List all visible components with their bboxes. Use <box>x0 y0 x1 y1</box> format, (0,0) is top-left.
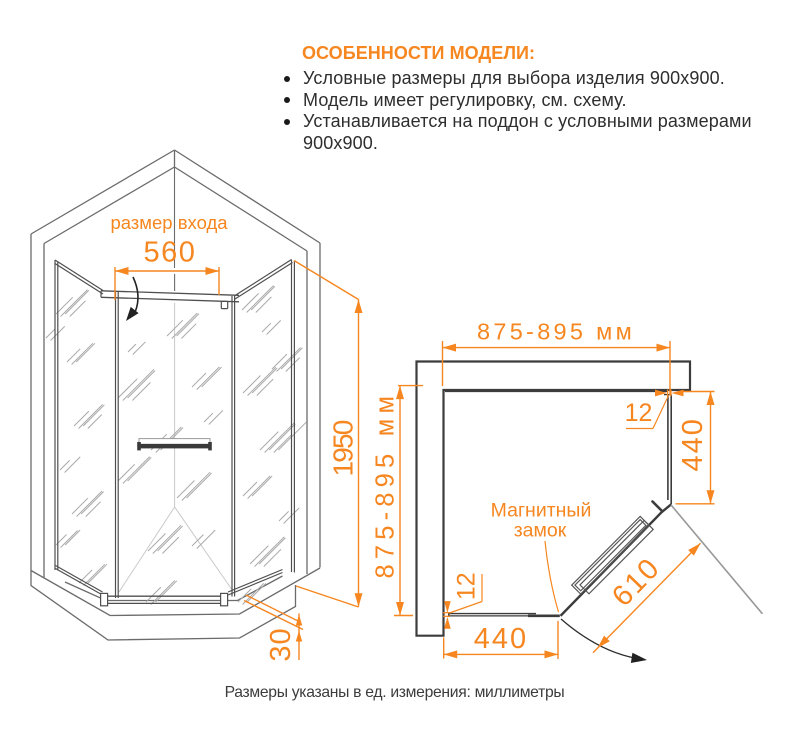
svg-text:1950: 1950 <box>328 420 359 476</box>
svg-text:875-895 мм: 875-895 мм <box>477 319 635 345</box>
svg-text:размер входа: размер входа <box>110 212 228 233</box>
svg-text:12: 12 <box>625 399 653 427</box>
svg-text:12: 12 <box>453 572 481 600</box>
svg-text:560: 560 <box>144 237 197 269</box>
svg-text:замок: замок <box>514 520 567 542</box>
svg-text:30: 30 <box>265 627 297 661</box>
svg-text:440: 440 <box>474 623 528 655</box>
svg-text:440: 440 <box>677 417 709 471</box>
svg-text:875-895 мм: 875-895 мм <box>372 391 400 579</box>
svg-text:Магнитный: Магнитный <box>491 500 592 522</box>
